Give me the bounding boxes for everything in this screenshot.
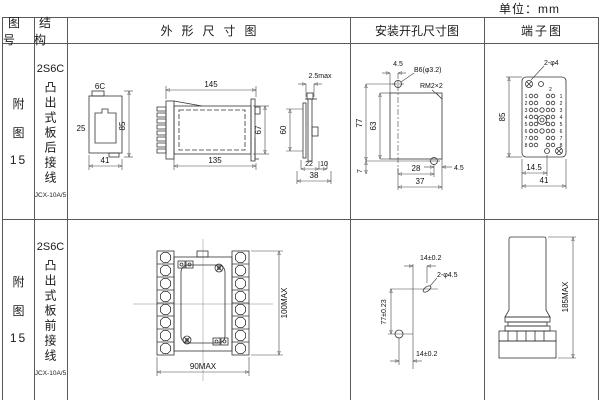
header-structure: 结构 [34, 18, 67, 43]
dim-67: 67 [254, 125, 263, 134]
dim-28: 28 [412, 164, 421, 173]
dim-90max: 90MAX [190, 362, 217, 371]
pin-number: 3 [525, 108, 528, 114]
spec-table: 图号 结构 外形尺寸图 安装开孔尺寸图 端子图 附 图 15 2S6C 凸出式板… [2, 17, 599, 400]
thread-spec-label: RM2×2 [420, 83, 443, 90]
dim-135: 135 [208, 156, 222, 165]
dim-77: 77 [355, 118, 364, 127]
dim-145: 145 [204, 80, 218, 89]
dim-60: 60 [279, 125, 288, 134]
pin-number: 8 [525, 143, 528, 149]
side-view [157, 99, 260, 161]
terminal-drawing-cell-front: 185MAX [484, 219, 598, 399]
pin-number: 6 [560, 129, 563, 135]
panel-section-dims: 2.5max 60 22 10 38 [279, 73, 332, 184]
front-view-dims: 6C 25 85 41 [77, 82, 133, 170]
dim-14-5: 14.5 [526, 163, 542, 172]
terminal-drawing-cell-rear: 1 2 3 4 5 6 7 8 1 2 3 4 5 6 7 8 [484, 43, 598, 219]
pin-number: 1 [525, 94, 528, 100]
figure-no-cell: 附 图 15 [3, 43, 34, 219]
dim-100max: 100MAX [280, 287, 289, 318]
header-outline: 外形尺寸图 [67, 18, 350, 43]
terminal-diagram-rear: 1 2 3 4 5 6 7 8 1 2 3 4 5 6 7 8 [484, 43, 598, 219]
structure-cell: 2S6C 凸出式板前接线 JCX-10A/5 [34, 219, 67, 399]
centerlines [133, 239, 273, 381]
pin-number: 4 [560, 115, 563, 121]
header-mounting: 安装开孔尺寸图 [350, 18, 484, 43]
figure-number: 15 [10, 331, 27, 345]
dim-41: 41 [101, 156, 110, 165]
hole-spec-label: 2-φ4.5 [437, 272, 458, 279]
terminal-pins [529, 94, 555, 147]
figure-number: 15 [10, 153, 27, 167]
panel-section-view [303, 93, 318, 161]
hole-dims: 14±0.2 2-φ4.5 77±0.23 14±0.2 [381, 255, 458, 365]
dim-25: 25 [77, 124, 86, 133]
dim-2-5max: 2.5max [309, 73, 332, 80]
dim-185max: 185MAX [561, 281, 570, 312]
hole-spec-label: 2-φ4 [544, 60, 559, 67]
dim-41: 41 [540, 176, 549, 185]
pin-number: 3 [560, 108, 563, 114]
dim-85: 85 [498, 112, 507, 121]
socket-footprint-drawing: 90MAX 100MAX [67, 219, 350, 399]
pin-number: 2 [560, 101, 563, 107]
mounting-drawing-cell-front: 14±0.2 2-φ4.5 77±0.23 14±0.2 [350, 219, 484, 399]
dim-85: 85 [118, 121, 127, 130]
height-dim: 185MAX [548, 237, 576, 358]
relay-silhouette [499, 237, 556, 358]
dim-37: 37 [416, 177, 425, 186]
dim-22: 22 [305, 161, 313, 168]
side-view-dims: 145 135 67 [166, 80, 269, 170]
dim-4-5-top: 4.5 [393, 61, 403, 68]
structure-type: 凸出式板后接线 [42, 81, 59, 186]
pin-number: 5 [560, 122, 563, 128]
structure-type: 凸出式板前接线 [42, 259, 59, 364]
figure-no-cell: 附 图 15 [3, 219, 34, 399]
terminal-dims: 2-φ4 2 85 14.5 41 [498, 60, 566, 189]
mounting-hole-drawing-front: 14±0.2 2-φ4.5 77±0.23 14±0.2 [350, 219, 484, 399]
pin-number: 7 [525, 136, 528, 142]
cutout-dims: 4.5 B6(φ3.2) RM2×2 77 63 7 [355, 61, 464, 190]
corner-mark: 2 [549, 87, 552, 93]
outline-drawing-cell-front: 90MAX 100MAX [67, 219, 350, 399]
header-terminal: 端子图 [484, 18, 598, 43]
structure-cell: 2S6C 凸出式板后接线 JCX-10A/5 [34, 43, 67, 219]
mounting-hole-drawing-rear: 4.5 B6(φ3.2) RM2×2 77 63 7 [350, 43, 484, 219]
pin-number: 2 [525, 101, 528, 107]
mounting-drawing-cell-rear: 4.5 B6(φ3.2) RM2×2 77 63 7 [350, 43, 484, 219]
dim-10: 10 [320, 161, 328, 168]
dim-6c: 6C [95, 82, 105, 91]
figure-char: 图 [12, 124, 24, 141]
pin-number: 4 [525, 115, 528, 121]
pin-number: 8 [560, 143, 563, 149]
outline-drawing-rear-wiring: 6C 25 85 41 [67, 43, 350, 219]
relay-in-socket-side-view: 185MAX [484, 219, 598, 399]
relay-code: JCX-10A/5 [35, 370, 66, 377]
relay-model: 2S6C [37, 63, 65, 75]
pin-number: 1 [560, 94, 563, 100]
dim-7: 7 [357, 169, 364, 173]
dim-14-bottom: 14±0.2 [416, 351, 437, 358]
dim-4-5-right: 4.5 [454, 165, 464, 172]
spec-sheet-page: 单位：mm 图号 结构 外形尺寸图 安装开孔尺寸图 端子图 附 图 15 2S6… [0, 0, 600, 400]
header-figure-no: 图号 [3, 18, 34, 43]
pin-number: 7 [560, 136, 563, 142]
dim-38: 38 [310, 171, 319, 180]
figure-char: 附 [12, 273, 24, 290]
pin-number: 6 [525, 129, 528, 135]
dim-77: 77±0.23 [381, 299, 388, 324]
dim-14-top: 14±0.2 [420, 255, 441, 262]
pin-number: 5 [525, 122, 528, 128]
outline-drawing-cell-rear: 6C 25 85 41 [67, 43, 350, 219]
unit-label: 单位：mm [499, 0, 560, 17]
relay-model: 2S6C [37, 241, 65, 253]
dim-63: 63 [369, 121, 378, 130]
figure-char: 附 [12, 95, 24, 112]
relay-code: JCX-10A/5 [35, 192, 66, 199]
figure-char: 图 [12, 302, 24, 319]
hole-spec-label: B6(φ3.2) [414, 67, 442, 74]
